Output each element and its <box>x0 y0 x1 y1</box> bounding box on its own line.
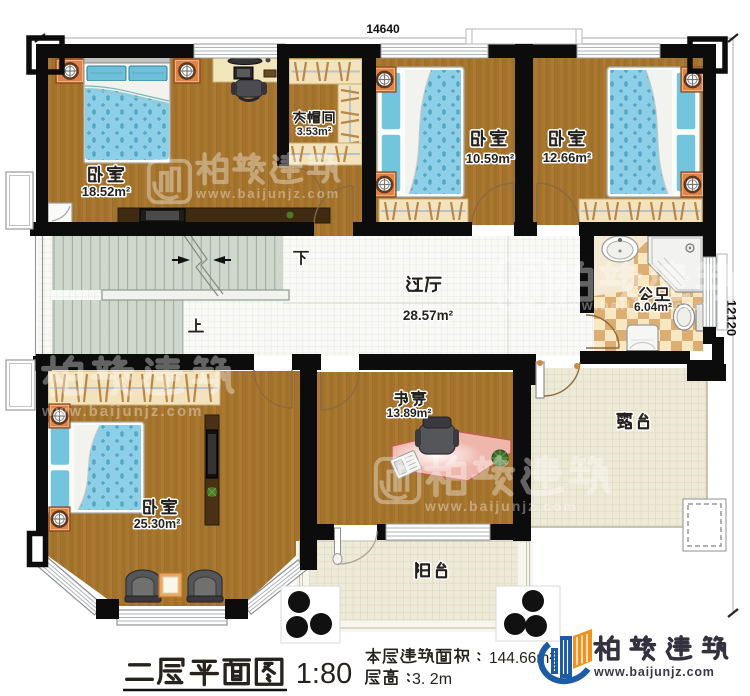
svg-text:10.59m²: 10.59m² <box>466 151 515 166</box>
svg-text:www.baijunjz.com: www.baijunjz.com <box>41 403 203 420</box>
svg-text:18.52m²: 18.52m² <box>82 184 131 199</box>
svg-text:www.baijunjz.com: www.baijunjz.com <box>195 186 340 201</box>
svg-text:6.04m²: 6.04m² <box>634 300 672 314</box>
svg-text:13.89m²: 13.89m² <box>387 406 432 420</box>
svg-text:25.30m²: 25.30m² <box>134 517 181 531</box>
svg-text:3. 2m: 3. 2m <box>412 671 452 688</box>
svg-text:www.baijunjz.com: www.baijunjz.com <box>424 498 578 514</box>
svg-text:3.53m²: 3.53m² <box>297 126 332 138</box>
svg-text:12.66m²: 12.66m² <box>543 150 592 165</box>
svg-text:28.57m²: 28.57m² <box>403 308 454 323</box>
svg-text:1:80: 1:80 <box>296 658 352 690</box>
svg-text:www.baijunjz.com: www.baijunjz.com <box>593 665 715 679</box>
svg-text:14640: 14640 <box>366 22 400 36</box>
svg-text:www.baijunjz.com: www.baijunjz.com <box>555 297 709 313</box>
